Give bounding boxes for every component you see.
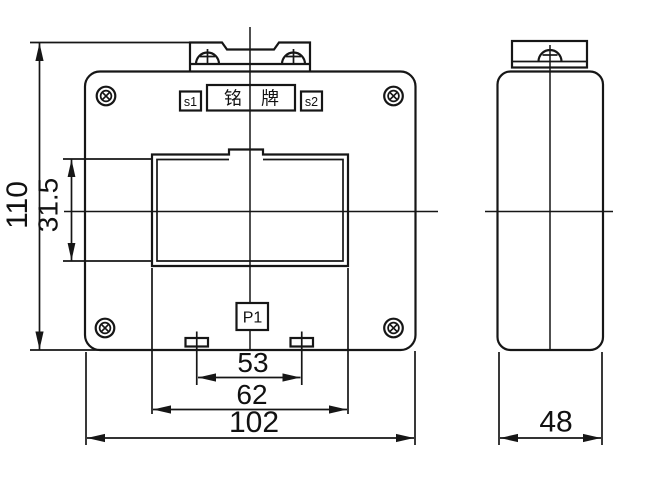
arrowhead-right bbox=[396, 434, 414, 442]
dim-depth: 48 bbox=[499, 352, 602, 445]
dim-label-110: 110 bbox=[1, 181, 34, 229]
s2-label: s2 bbox=[305, 95, 318, 109]
arrowhead-down bbox=[68, 243, 76, 261]
dim-hole-spacing: 53 bbox=[198, 347, 301, 382]
dim-label-31-5: 31.5 bbox=[32, 178, 63, 233]
arrowhead-down bbox=[35, 332, 43, 350]
drawing-svg: s1 铭牌 s2 P1 110 bbox=[0, 0, 645, 479]
nameplate-label: 铭牌 bbox=[224, 89, 298, 109]
arrowhead-left bbox=[87, 434, 105, 442]
dim-label-48: 48 bbox=[539, 406, 572, 439]
dim-label-53: 53 bbox=[237, 347, 268, 378]
arrowhead-up bbox=[35, 43, 43, 61]
arrowhead-right bbox=[283, 373, 301, 381]
p1-terminal-group: P1 bbox=[237, 303, 269, 330]
s1-label: s1 bbox=[184, 95, 197, 109]
side-view: 48 bbox=[485, 41, 613, 445]
dim-label-102: 102 bbox=[229, 406, 279, 439]
arrowhead-right bbox=[329, 405, 347, 413]
arrowhead-left bbox=[198, 373, 216, 381]
arrowhead-up bbox=[68, 160, 76, 178]
p1-label: P1 bbox=[243, 310, 263, 327]
arrowhead-left bbox=[153, 405, 171, 413]
arrowhead-right bbox=[583, 434, 601, 442]
arrowhead-left bbox=[500, 434, 518, 442]
front-view: s1 铭牌 s2 P1 110 bbox=[1, 27, 438, 445]
dimension-drawing: s1 铭牌 s2 P1 110 bbox=[0, 0, 645, 479]
